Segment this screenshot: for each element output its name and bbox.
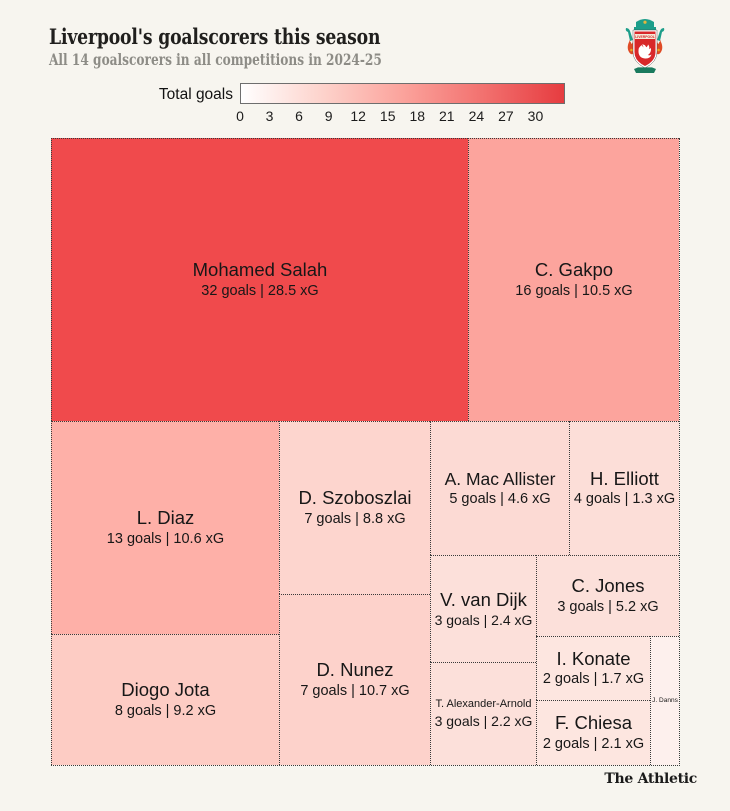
treemap-cell-v-van-dijk: V. van Dijk3 goals | 2.4 xG xyxy=(430,555,536,662)
treemap-cell-c-gakpo: C. Gakpo16 goals | 10.5 xG xyxy=(468,138,679,421)
player-stats: 2 goals | 1.7 xG xyxy=(543,670,644,689)
treemap-cell-d-nunez: D. Nunez7 goals | 10.7 xG xyxy=(279,594,430,765)
liverpool-crest-icon: LIVERPOOL xyxy=(622,18,668,76)
player-stats: 2 goals | 2.1 xG xyxy=(543,735,644,754)
legend-tick: 24 xyxy=(469,108,485,124)
player-name: H. Elliott xyxy=(590,468,659,490)
player-stats: 5 goals | 4.6 xG xyxy=(449,490,550,509)
legend-tick: 3 xyxy=(266,108,274,124)
treemap-cell-t-alexander-arnold: T. Alexander-Arnold3 goals | 2.2 xG xyxy=(430,662,536,765)
player-name: L. Diaz xyxy=(137,507,195,529)
player-name: J. Danns xyxy=(652,697,678,705)
player-stats: 3 goals | 5.2 xG xyxy=(557,598,658,617)
player-name: Mohamed Salah xyxy=(193,259,328,281)
legend-tick: 27 xyxy=(498,108,514,124)
treemap-cell-i-konate: I. Konate2 goals | 1.7 xG xyxy=(536,636,650,700)
player-stats: 7 goals | 8.8 xG xyxy=(304,510,405,529)
player-name: I. Konate xyxy=(556,648,630,670)
treemap-cell-d-szoboszlai: D. Szoboszlai7 goals | 8.8 xG xyxy=(279,421,430,594)
player-name: A. Mac Allister xyxy=(445,469,556,490)
player-stats: 3 goals | 2.4 xG xyxy=(435,611,533,629)
player-name: V. van Dijk xyxy=(440,589,527,611)
legend-tick: 15 xyxy=(380,108,396,124)
player-stats: 4 goals | 1.3 xG xyxy=(574,490,675,509)
player-stats: 7 goals | 10.7 xG xyxy=(300,682,409,701)
legend-tick: 9 xyxy=(325,108,333,124)
treemap-cell-diogo-jota: Diogo Jota8 goals | 9.2 xG xyxy=(51,634,279,765)
svg-text:LIVERPOOL: LIVERPOOL xyxy=(635,35,655,39)
treemap-cell-l-diaz: L. Diaz13 goals | 10.6 xG xyxy=(51,421,279,634)
player-name: Diogo Jota xyxy=(121,679,209,701)
page-subtitle: All 14 goalscorers in all competitions i… xyxy=(49,50,382,69)
player-name: D. Szoboszlai xyxy=(298,487,411,509)
treemap: Mohamed Salah32 goals | 28.5 xGC. Gakpo1… xyxy=(51,138,680,766)
legend-tick: 6 xyxy=(295,108,303,124)
player-name: F. Chiesa xyxy=(555,712,632,734)
player-stats: 32 goals | 28.5 xG xyxy=(201,282,318,301)
player-name: C. Jones xyxy=(571,575,644,597)
player-name: T. Alexander-Arnold xyxy=(436,698,532,711)
treemap-cell-f-chiesa: F. Chiesa2 goals | 2.1 xG xyxy=(536,700,650,765)
player-stats: 13 goals | 10.6 xG xyxy=(107,530,224,549)
legend-gradient-bar xyxy=(240,83,565,104)
player-name: C. Gakpo xyxy=(535,259,613,281)
player-name: D. Nunez xyxy=(316,659,393,681)
player-stats: 8 goals | 9.2 xG xyxy=(115,702,216,721)
page-title: Liverpool's goalscorers this season xyxy=(49,24,380,49)
legend-tick: 12 xyxy=(350,108,366,124)
player-stats: 3 goals | 2.2 xG xyxy=(435,712,533,730)
treemap-cell-j-danns: J. Danns xyxy=(650,636,679,765)
legend-label: Total goals xyxy=(100,86,233,104)
legend-tick: 0 xyxy=(236,108,244,124)
player-stats: 16 goals | 10.5 xG xyxy=(515,282,632,301)
treemap-cell-a-mac-allister: A. Mac Allister5 goals | 4.6 xG xyxy=(430,421,569,555)
treemap-cell-c-jones: C. Jones3 goals | 5.2 xG xyxy=(536,555,679,636)
treemap-cell-mohamed-salah: Mohamed Salah32 goals | 28.5 xG xyxy=(51,138,468,421)
page: Liverpool's goalscorers this season All … xyxy=(0,0,730,811)
legend-tick: 21 xyxy=(439,108,455,124)
legend-tick: 30 xyxy=(528,108,544,124)
legend-tick-labels: 036912151821242730 xyxy=(240,108,565,124)
treemap-cell-h-elliott: H. Elliott4 goals | 1.3 xG xyxy=(569,421,679,555)
athletic-wordmark: The Athletic xyxy=(604,771,697,787)
legend-tick: 18 xyxy=(409,108,425,124)
